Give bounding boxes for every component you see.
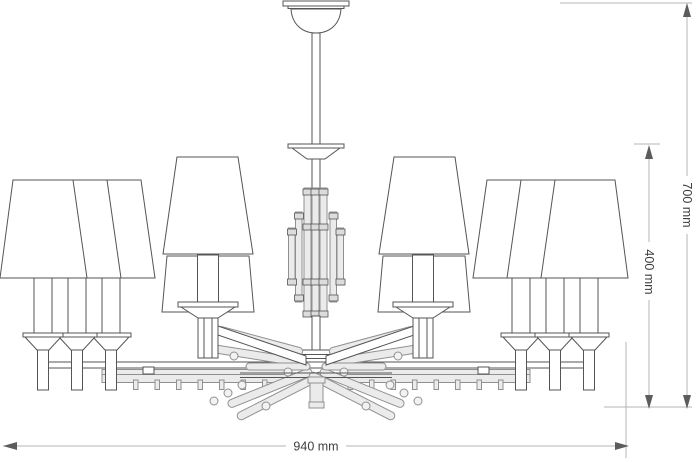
candle-post (38, 350, 49, 390)
bobeche-cup (59, 337, 95, 350)
bobeche-rim (569, 333, 609, 337)
ceiling-canopy (283, 1, 349, 33)
arm-bar (45, 362, 587, 368)
candle-post (550, 350, 561, 390)
bobeche-cup (537, 337, 573, 350)
bobeche-cup (181, 307, 235, 318)
shade-center-left (163, 157, 253, 254)
shade-center-right (379, 157, 469, 254)
stem-funnel (292, 148, 340, 159)
candle-post (584, 350, 595, 390)
candle-left-1 (23, 278, 63, 390)
bobeche-cup (571, 337, 607, 350)
body-height-label: 400 mm (642, 249, 656, 294)
drawing-svg: 700 mm 400 mm 940 mm (0, 0, 700, 463)
bobeche-rim (393, 302, 453, 307)
candle-post (413, 318, 433, 358)
candle-post (106, 350, 117, 390)
width-label: 940 mm (293, 440, 338, 454)
dimension-height-body: 400 mm (634, 144, 660, 409)
bobeche-cup (503, 337, 539, 350)
bobeche-cup (93, 337, 129, 350)
dim-arrow-up (645, 145, 653, 159)
chandelier-technical-drawing: 700 mm 400 mm 940 mm (0, 0, 700, 463)
bobeche-rim (178, 302, 238, 307)
rail-clip (478, 367, 489, 374)
bobeche-cup (25, 337, 61, 350)
crystal-column (288, 188, 346, 317)
shade-right-1 (541, 180, 628, 278)
canopy-dome (291, 9, 341, 33)
dim-arrow-left (3, 442, 17, 450)
candle-post (72, 350, 83, 390)
suspension-rod (288, 33, 344, 188)
candle-right-1 (569, 278, 609, 390)
candle-post (516, 350, 527, 390)
dim-arrow-right (615, 442, 629, 450)
rail-clip (143, 367, 154, 374)
stem-funnel-plate (288, 144, 344, 148)
overall-height-label: 700 mm (680, 182, 694, 227)
center-finial (308, 377, 325, 408)
shade-left-1 (0, 180, 87, 278)
bobeche-rim (23, 333, 63, 337)
bobeche-cup (396, 307, 450, 318)
candle-post (198, 318, 218, 358)
dim-arrow-up (683, 3, 691, 17)
